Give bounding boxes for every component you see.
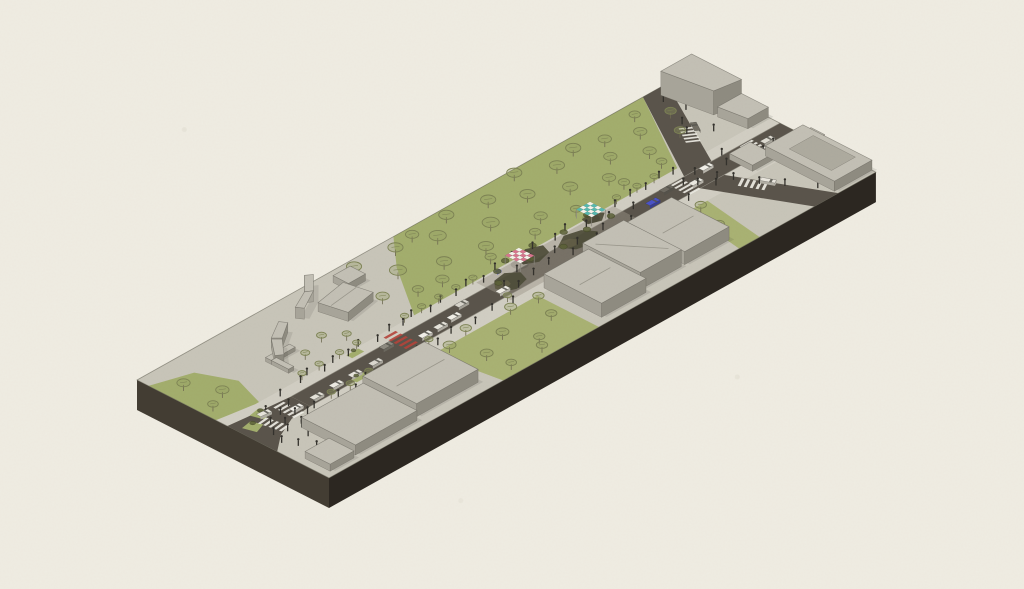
site-model-illustration bbox=[0, 0, 1024, 589]
paper-grain-overlay bbox=[0, 0, 1024, 589]
paper-background bbox=[0, 0, 1024, 589]
